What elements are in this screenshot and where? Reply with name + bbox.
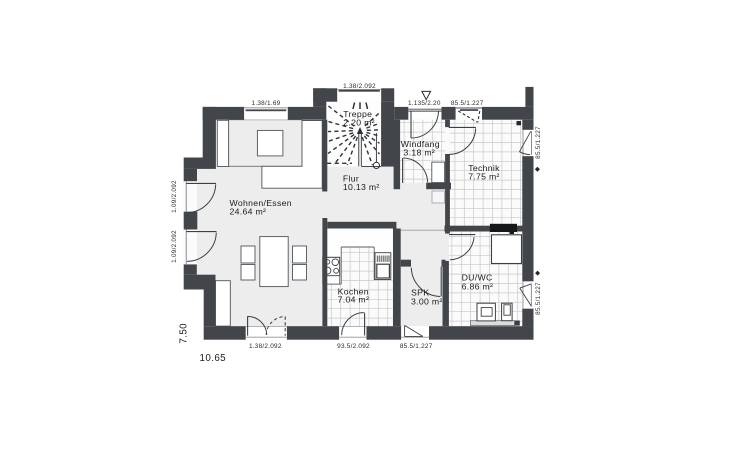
- svg-text:93.5/2.092: 93.5/2.092: [337, 343, 370, 350]
- svg-text:2.20 m²: 2.20 m²: [343, 117, 375, 127]
- svg-text:1.09/2.092: 1.09/2.092: [171, 180, 178, 213]
- svg-text:10.13 m²: 10.13 m²: [343, 182, 380, 192]
- svg-text:24.64 m²: 24.64 m²: [230, 206, 267, 216]
- svg-text:3.18 m²: 3.18 m²: [404, 147, 436, 157]
- svg-text:1.38/2.092: 1.38/2.092: [343, 83, 376, 90]
- svg-text:85.5/1.227: 85.5/1.227: [535, 126, 542, 159]
- svg-text:3.00 m²: 3.00 m²: [411, 297, 443, 307]
- svg-text:7.75 m²: 7.75 m²: [468, 172, 500, 182]
- svg-text:1.38/1.69: 1.38/1.69: [252, 100, 281, 107]
- svg-text:6.86 m²: 6.86 m²: [462, 281, 494, 291]
- svg-text:7.04 m²: 7.04 m²: [338, 294, 370, 304]
- svg-text:10.65: 10.65: [200, 353, 227, 364]
- svg-text:85.5/1.227: 85.5/1.227: [535, 282, 542, 315]
- svg-text:7.50: 7.50: [178, 323, 189, 344]
- svg-text:1.135/2.20: 1.135/2.20: [408, 100, 441, 107]
- svg-text:85.5/1.227: 85.5/1.227: [400, 343, 433, 350]
- svg-text:85.5/1.227: 85.5/1.227: [451, 100, 484, 107]
- svg-text:1.38/2.092: 1.38/2.092: [249, 343, 282, 350]
- svg-text:1.09/2.092: 1.09/2.092: [171, 230, 178, 263]
